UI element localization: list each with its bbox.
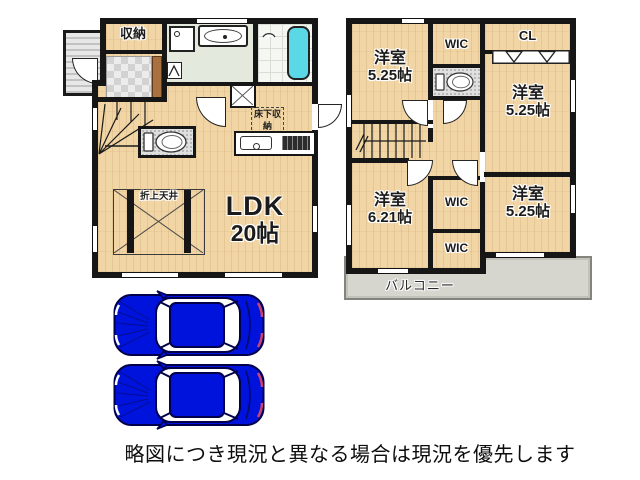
car-top-view-icon [112,290,266,360]
floorplan-screenshot: 収納 [0,0,640,480]
disclaimer-text: 略図につき現況と異なる場合は現況を優先します [70,438,630,467]
parking-area [0,0,640,480]
car-top-view-icon [112,360,266,430]
